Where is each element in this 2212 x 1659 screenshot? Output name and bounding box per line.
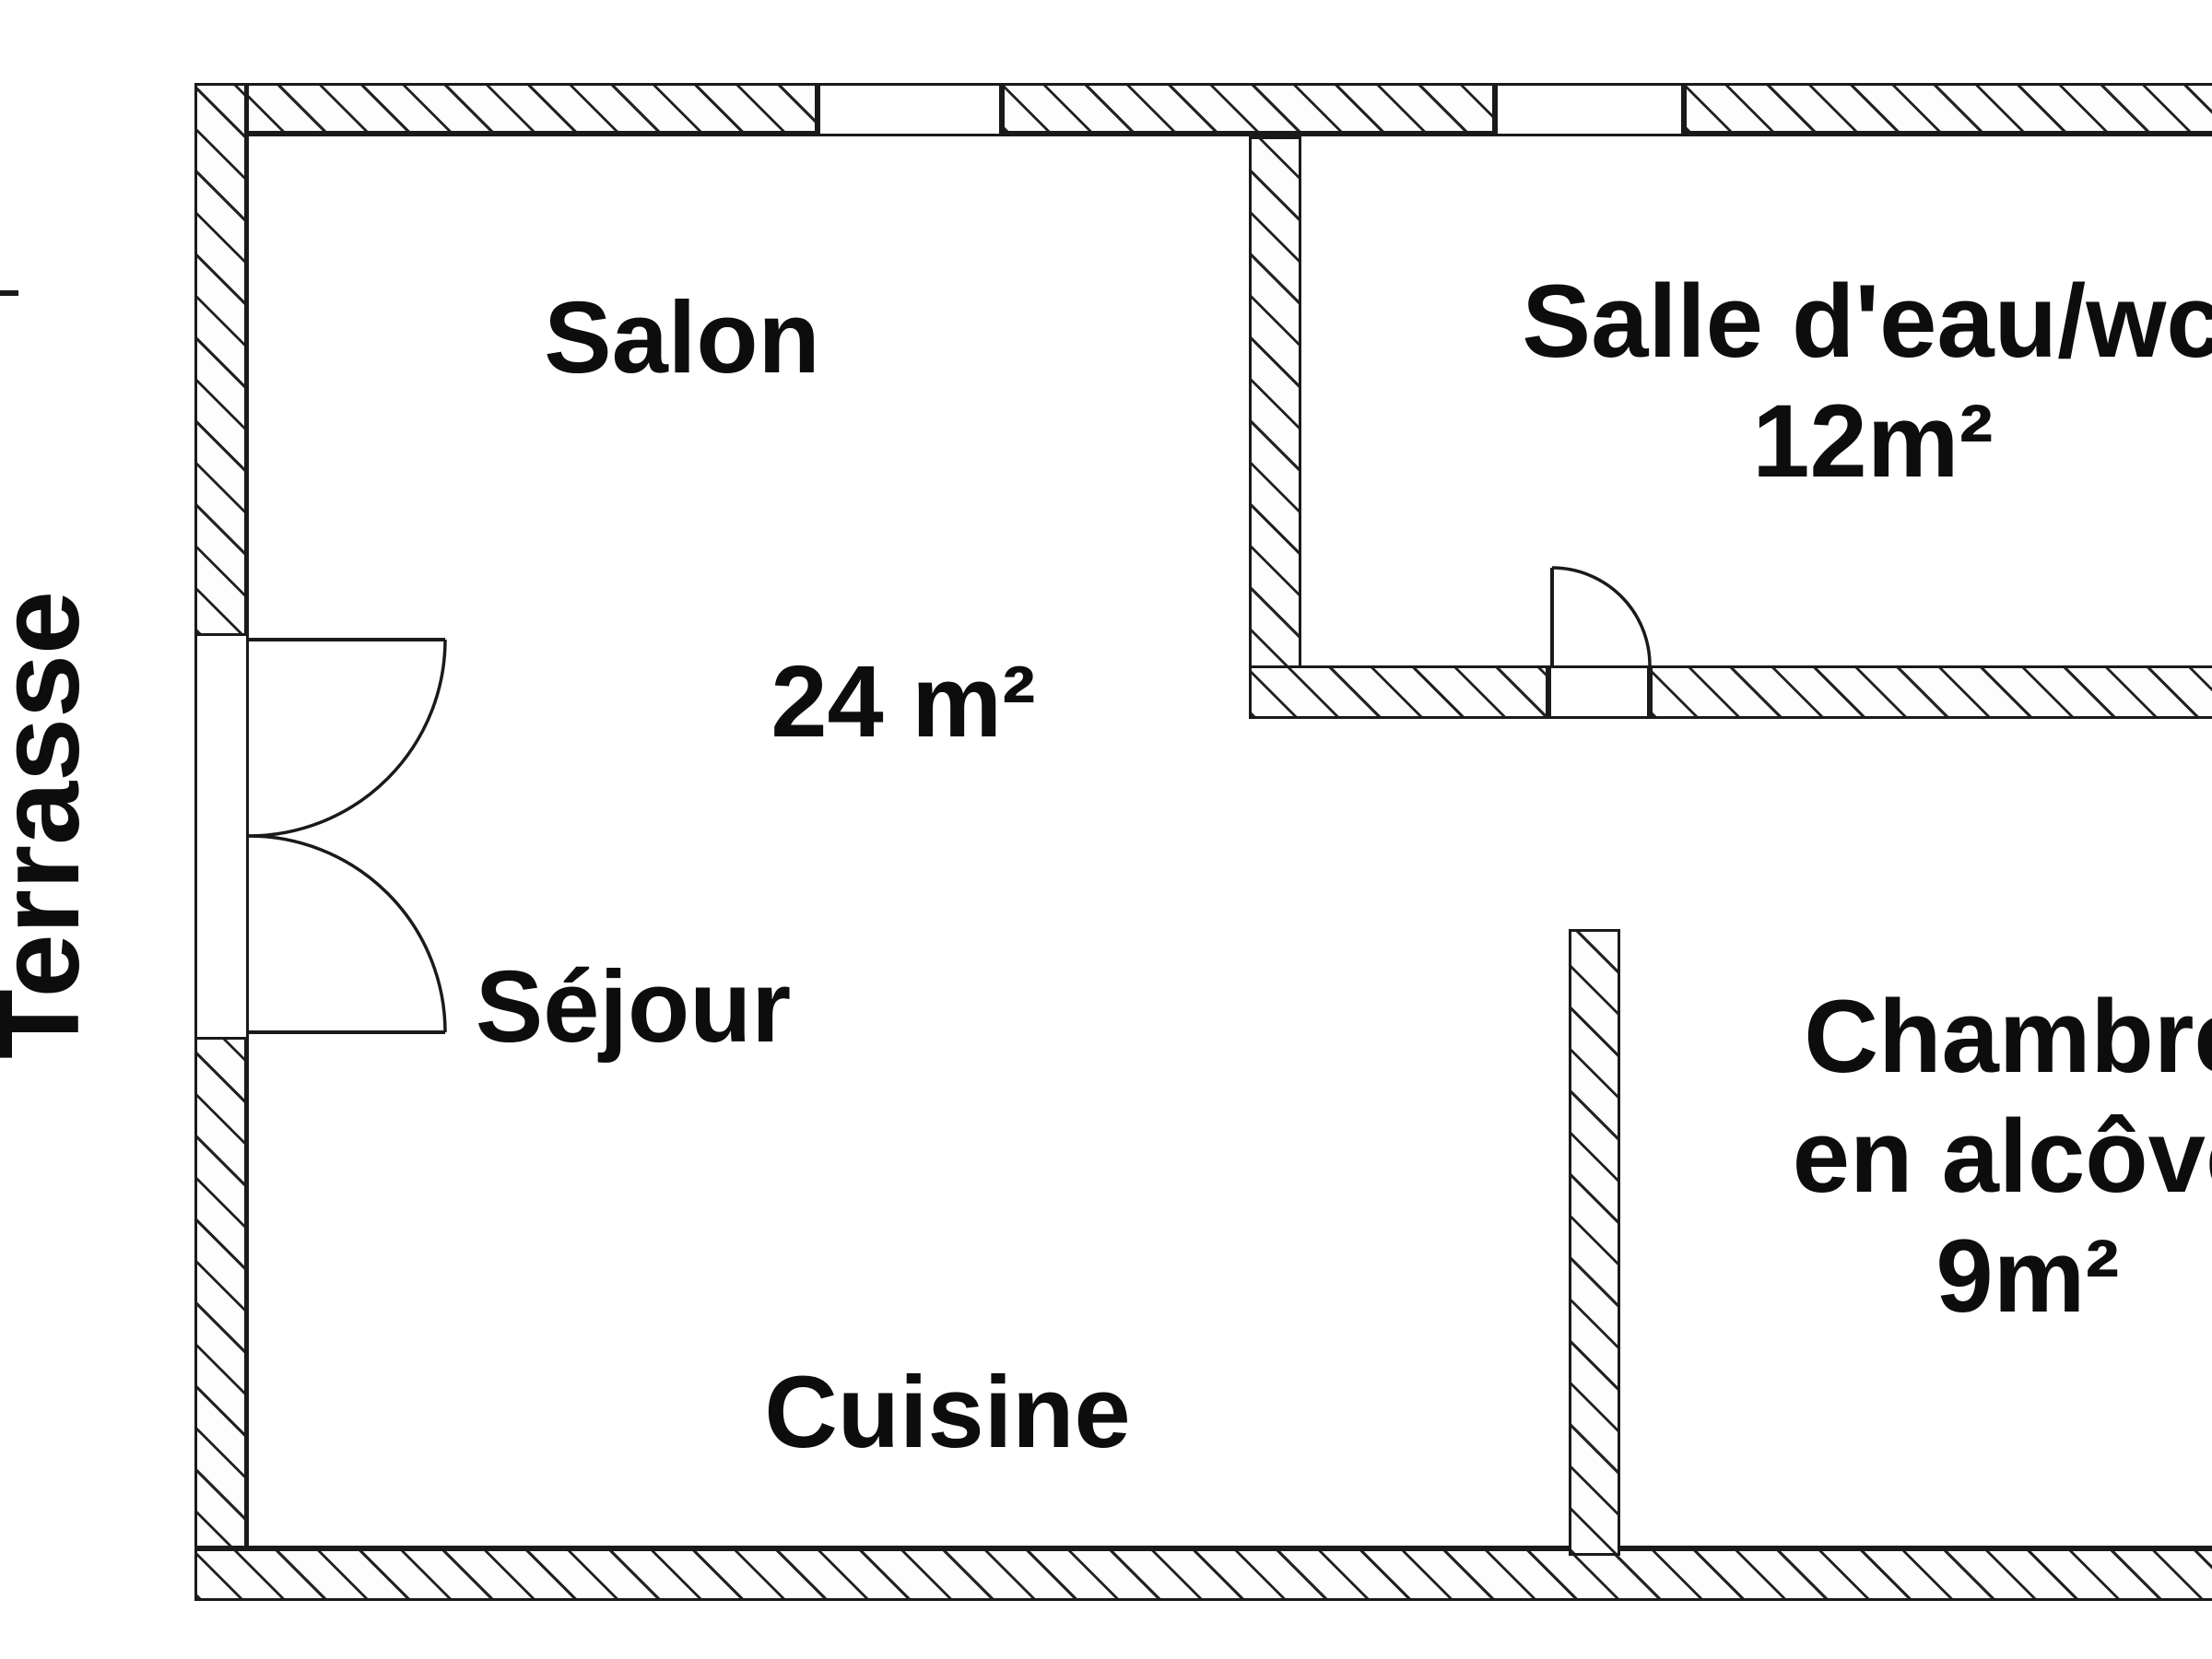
wall-left-segment-lower xyxy=(194,1037,249,1601)
sejour-label: Séjour xyxy=(476,949,791,1066)
window-2 xyxy=(1495,83,1684,136)
wall-cuisine-chambre xyxy=(1569,929,1620,1556)
salledeau-label: Salle d'eau/wc xyxy=(1522,262,2212,382)
salledeau-label-block: Salle d'eau/wc 12m² xyxy=(1522,262,2212,501)
wall-top-segment-2 xyxy=(1002,83,1495,136)
chambre-label: Chambre xyxy=(1793,977,2212,1097)
wall-left-segment-upper xyxy=(194,83,249,636)
floor-plan-page: { "plan": { "title": "Apartment floor pl… xyxy=(0,0,2212,1659)
wall-bottom xyxy=(194,1546,2212,1601)
salon-area-label: 24 m² xyxy=(771,644,1035,761)
terrasse-label: Terrasse xyxy=(0,502,113,1147)
wall-salon-salledeau xyxy=(1249,136,1301,719)
window-1 xyxy=(818,83,1002,136)
wall-top-segment-3 xyxy=(1684,83,2212,136)
salledeau-door-opening xyxy=(1548,665,1650,719)
salledeau-door-arc xyxy=(1552,568,1650,665)
terrace-door-lower-arc xyxy=(249,836,445,1032)
salon-label: Salon xyxy=(544,280,820,397)
chambre-area-label: 9m² xyxy=(1793,1217,2212,1336)
wall-salledeau-bottom-right xyxy=(1650,665,2212,719)
cuisine-label: Cuisine xyxy=(764,1355,1130,1472)
wall-top-segment-1 xyxy=(194,83,818,136)
chambre-sublabel: en alcôve xyxy=(1793,1097,2212,1217)
wall-salledeau-bottom-left xyxy=(1249,665,1548,719)
chambre-label-block: Chambre en alcôve 9m² xyxy=(1793,977,2212,1336)
terrace-door-opening xyxy=(194,636,249,1037)
salledeau-area-label: 12m² xyxy=(1522,382,2212,501)
terrace-door-upper-arc xyxy=(249,640,445,836)
